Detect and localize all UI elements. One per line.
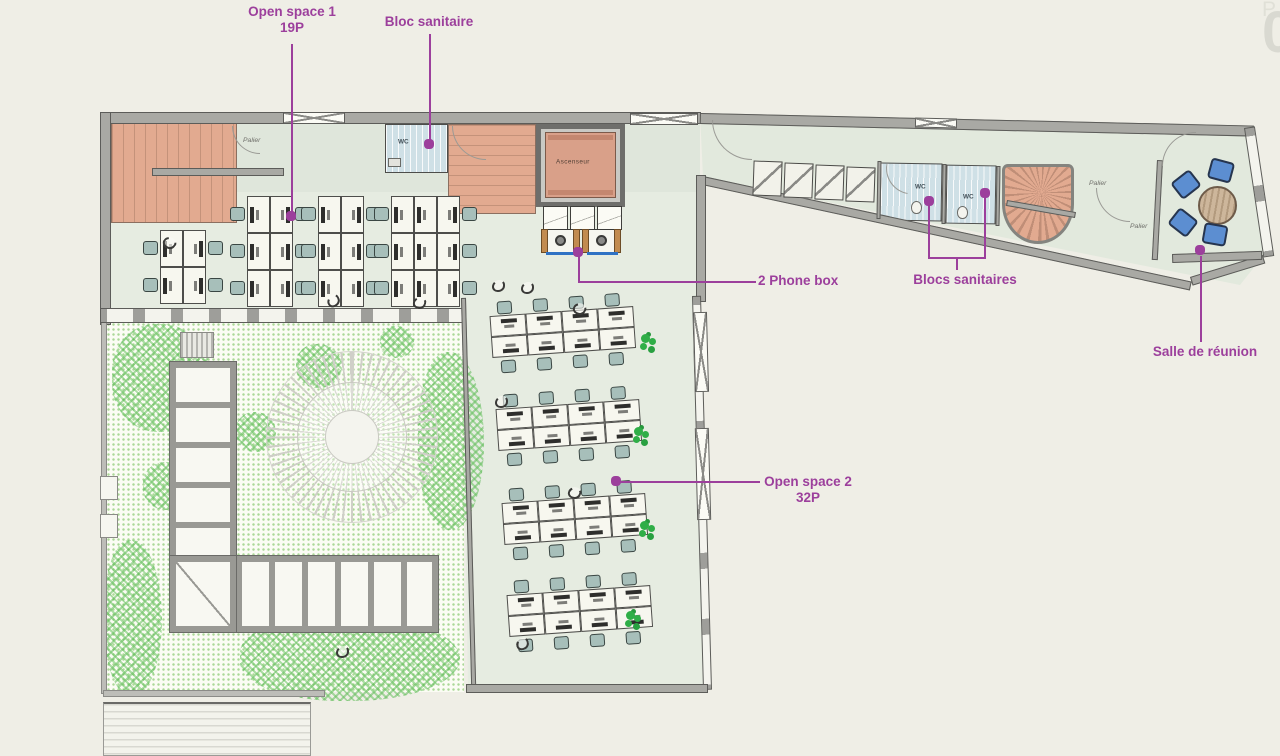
desk: [497, 428, 534, 451]
desk-keyboard: [558, 620, 568, 624]
x-window: [695, 428, 711, 520]
locker-cabinet: [752, 161, 782, 197]
garden-tree: [104, 540, 162, 696]
desk: [391, 196, 414, 233]
desk: [544, 611, 581, 634]
office-chair: [604, 293, 620, 307]
desk-keyboard: [588, 506, 598, 510]
desk: [414, 196, 437, 233]
desk: [542, 590, 579, 613]
phone-box-threshold: [587, 252, 618, 255]
desk-keyboard: [516, 511, 526, 515]
dome-core: [325, 410, 379, 464]
desk-monitor: [617, 434, 633, 439]
desk-keyboard: [511, 436, 521, 440]
office-chair: [572, 354, 588, 368]
toilet-fixture: [911, 201, 922, 214]
office-chair: [549, 544, 565, 558]
office-chair: [208, 241, 223, 255]
desk-keyboard: [521, 603, 531, 607]
x-window: [915, 118, 957, 129]
phone-box-seat: [596, 235, 607, 246]
main-top-wall: [100, 112, 701, 124]
toilet-fixture: [957, 206, 968, 219]
desk-keyboard: [400, 210, 403, 220]
desk-keyboard: [423, 284, 426, 294]
plant-icon: [640, 521, 649, 530]
desk-monitor: [556, 625, 572, 630]
desk-monitor: [417, 244, 421, 260]
office-chair: [584, 541, 600, 555]
desk: [502, 501, 539, 524]
wc-sink: [388, 158, 401, 167]
desk-keyboard: [583, 431, 593, 435]
desk: [183, 267, 206, 304]
desk: [569, 422, 606, 445]
desk-keyboard: [517, 530, 527, 534]
desk-keyboard: [594, 617, 604, 621]
desk-keyboard: [576, 319, 586, 323]
office-chair: [497, 301, 513, 315]
office-chair: [501, 359, 517, 373]
room-label-palier: Palier: [1130, 222, 1147, 230]
desk-monitor: [518, 597, 534, 602]
desk-keyboard: [256, 284, 259, 294]
desk-keyboard: [169, 281, 172, 291]
desk: [490, 314, 527, 337]
street-ramp: [103, 702, 311, 756]
desk-monitor: [394, 207, 398, 223]
desk-monitor: [611, 341, 627, 346]
desk-keyboard: [557, 601, 567, 605]
annotation-line: [578, 254, 580, 282]
annotation-dot: [1195, 245, 1205, 255]
desk-keyboard: [612, 317, 622, 321]
desk-monitor: [551, 533, 567, 538]
desk-keyboard: [281, 210, 284, 220]
annotation-dot: [424, 139, 434, 149]
room-label-wc: WC: [963, 193, 974, 200]
annotation-line: [291, 44, 293, 213]
desk-keyboard: [618, 410, 628, 414]
closet-cabinet: [597, 206, 622, 230]
desk-monitor: [357, 244, 361, 260]
desk-keyboard: [281, 247, 284, 257]
desk: [160, 267, 183, 304]
desk: [341, 270, 364, 307]
phone-box-seat: [555, 235, 566, 246]
office-chair: [507, 452, 523, 466]
open-space-2-bottom-wall: [466, 684, 708, 693]
desk-keyboard: [589, 525, 599, 529]
desk-monitor: [357, 207, 361, 223]
desk: [318, 233, 341, 270]
office-chair: [554, 636, 570, 650]
desk-monitor: [625, 590, 641, 595]
desk-monitor: [199, 278, 203, 294]
desk: [508, 614, 545, 637]
desk-keyboard: [553, 528, 563, 532]
office-chair: [537, 357, 553, 371]
desk-keyboard: [619, 429, 629, 433]
desk-monitor: [199, 241, 203, 257]
office-chair: [608, 352, 624, 366]
office-chair: [208, 278, 223, 292]
desk: [491, 335, 528, 358]
office-chair: [143, 241, 158, 255]
desk-keyboard: [281, 284, 284, 294]
desk: [270, 270, 293, 307]
desk: [531, 404, 568, 427]
desk-monitor: [515, 535, 531, 540]
meeting-table: [1198, 186, 1237, 225]
desk-monitor: [543, 409, 559, 414]
desk-keyboard: [400, 284, 403, 294]
desk-keyboard: [577, 338, 587, 342]
annotation-line: [1200, 256, 1202, 342]
floor-plan-page: 01 PLAN: [0, 0, 1280, 756]
desk-monitor: [250, 244, 254, 260]
office-chair: [620, 539, 636, 553]
desk-monitor: [554, 595, 570, 600]
desk-monitor: [501, 318, 517, 323]
desk-monitor: [549, 503, 565, 508]
annotation-label-blocs-sanitaires: Blocs sanitaires: [895, 272, 1035, 288]
desk-monitor: [539, 346, 555, 351]
office-chair: [301, 244, 316, 258]
phone-box-panel: [614, 229, 621, 253]
desk: [391, 233, 414, 270]
elevator-cab-back: [548, 190, 613, 195]
desk-keyboard: [624, 504, 634, 508]
desk-monitor: [537, 316, 553, 321]
desk-keyboard: [423, 247, 426, 257]
desk: [247, 196, 270, 233]
office-chair: [230, 207, 245, 221]
desk-keyboard: [448, 284, 451, 294]
annotation-label-bloc-sanitaire: Bloc sanitaire: [363, 14, 495, 30]
office-chair: [374, 281, 389, 295]
room-label-wc: WC: [398, 138, 409, 145]
desk-keyboard: [352, 247, 355, 257]
office-chair: [543, 450, 559, 464]
office-chair: [610, 386, 626, 400]
office-chair: [301, 207, 316, 221]
desk: [247, 270, 270, 307]
desk: [183, 230, 206, 267]
closet-cabinet: [570, 206, 595, 230]
desk: [527, 332, 564, 355]
office-chair: [374, 244, 389, 258]
desk-monitor: [357, 281, 361, 297]
desk: [609, 493, 646, 516]
desk-monitor: [321, 281, 325, 297]
garden-wall-nub-2: [100, 514, 118, 538]
annotation-label-2-phone-box: 2 Phone box: [758, 273, 898, 289]
desk-keyboard: [448, 247, 451, 257]
office-chair: [301, 281, 316, 295]
office-chair: [549, 577, 565, 591]
desk-bench-group: [493, 385, 646, 471]
desk: [525, 311, 562, 334]
desk-monitor: [453, 244, 457, 260]
desk: [614, 585, 651, 608]
desk-monitor: [620, 498, 636, 503]
stair-handrail-wall: [152, 168, 284, 176]
desk: [318, 196, 341, 233]
desk-keyboard: [540, 322, 550, 326]
office-chair: [574, 388, 590, 402]
desk: [437, 233, 460, 270]
desk-monitor: [394, 244, 398, 260]
office-chair: [578, 447, 594, 461]
desk-keyboard: [541, 341, 551, 345]
desk-monitor: [513, 505, 529, 510]
office-chair: [509, 488, 525, 502]
desk-keyboard: [546, 415, 556, 419]
room-label-palier: Palier: [1089, 179, 1106, 187]
desk: [503, 522, 540, 545]
desk-monitor: [628, 620, 644, 625]
floor-plan-drawing: PalierPalierPalierWCWCWCAscenseurOpen sp…: [0, 0, 1280, 756]
office-chair: [625, 631, 641, 645]
office-chair: [544, 485, 560, 499]
plant-icon: [641, 334, 650, 343]
desk: [533, 425, 570, 448]
office-chair: [462, 207, 477, 221]
desk-monitor: [417, 207, 421, 223]
annotation-label-open-space-1: Open space 119P: [222, 4, 362, 36]
desk-monitor: [614, 404, 630, 409]
desk-keyboard: [448, 210, 451, 220]
desk-monitor: [509, 441, 525, 446]
desk-keyboard: [510, 417, 520, 421]
office-chair: [513, 546, 529, 560]
desk: [247, 233, 270, 270]
desk: [578, 588, 615, 611]
annotation-line: [578, 281, 756, 283]
desk-keyboard: [400, 247, 403, 257]
desk-monitor: [507, 411, 523, 416]
office-chair: [532, 298, 548, 312]
office-chair: [462, 281, 477, 295]
desk: [341, 196, 364, 233]
desk: [437, 196, 460, 233]
locker-cabinet: [845, 167, 875, 203]
desk-monitor: [587, 530, 603, 535]
desk-monitor: [623, 528, 639, 533]
open-space-1-window-band: [100, 308, 464, 323]
annotation-dot: [286, 211, 296, 221]
desk-monitor: [286, 244, 290, 260]
desk-monitor: [417, 281, 421, 297]
desk: [341, 233, 364, 270]
desk-keyboard: [352, 210, 355, 220]
annotation-dot: [573, 247, 583, 257]
desk-keyboard: [625, 523, 635, 527]
x-window: [693, 312, 709, 392]
office-chair: [462, 244, 477, 258]
desk-monitor: [608, 311, 624, 316]
office-chair: [614, 445, 630, 459]
desk-monitor: [585, 500, 601, 505]
desk-monitor: [575, 343, 591, 348]
desk-monitor: [453, 207, 457, 223]
room-label-ascenseur: Ascenseur: [556, 158, 590, 165]
plant-icon: [626, 611, 635, 620]
desk: [496, 407, 533, 430]
desk-keyboard: [522, 622, 532, 626]
desk: [603, 399, 640, 422]
desk-monitor: [163, 278, 167, 294]
desk: [567, 402, 604, 425]
annotation-label-open-space-2: Open space 232P: [742, 474, 874, 506]
desk-keyboard: [256, 210, 259, 220]
desk-monitor: [250, 281, 254, 297]
desk-keyboard: [423, 210, 426, 220]
desk-keyboard: [194, 244, 197, 254]
locker-cabinet: [814, 165, 844, 201]
office-chair: [621, 572, 637, 586]
locker-cabinet: [783, 163, 813, 199]
plant-icon: [634, 427, 643, 436]
office-chair: [230, 281, 245, 295]
office-chair: [230, 244, 245, 258]
annotation-dot: [924, 196, 934, 206]
desk: [507, 593, 544, 616]
phone-box-panel: [582, 229, 589, 253]
annotation-dot: [611, 476, 621, 486]
desk-monitor: [394, 281, 398, 297]
desk: [537, 498, 574, 521]
phone-box-panel: [541, 229, 548, 253]
room-label-wc: WC: [915, 183, 926, 190]
office-chair: [589, 633, 605, 647]
desk-monitor: [321, 207, 325, 223]
desk-keyboard: [613, 336, 623, 340]
garden-tree: [380, 326, 414, 358]
desk-monitor: [592, 622, 608, 627]
closet-cabinet: [543, 206, 568, 230]
garden-wall-nub-1: [100, 476, 118, 500]
desk-keyboard: [593, 598, 603, 602]
desk-monitor: [545, 439, 561, 444]
desk-monitor: [321, 244, 325, 260]
office-chair: [585, 574, 601, 588]
annotation-line: [984, 198, 986, 258]
desk: [270, 233, 293, 270]
desk-keyboard: [327, 247, 330, 257]
annotation-line: [620, 481, 760, 483]
garden-left-wall: [101, 322, 107, 694]
desk-monitor: [503, 348, 519, 353]
main-left-wall: [100, 112, 111, 325]
room-label-palier: Palier: [243, 136, 260, 144]
skylight-horizontal: [236, 556, 438, 632]
annotation-line: [429, 34, 431, 140]
desk: [599, 327, 636, 350]
desk: [580, 608, 617, 631]
x-window: [630, 113, 698, 125]
desk-keyboard: [582, 412, 592, 416]
desk-keyboard: [505, 343, 515, 347]
phone-box: [582, 229, 621, 253]
garden-bottom-wall: [103, 690, 325, 697]
desk-monitor: [453, 281, 457, 297]
desk: [573, 496, 610, 519]
office-chair: [143, 278, 158, 292]
desk-keyboard: [547, 434, 557, 438]
desk-keyboard: [504, 324, 514, 328]
desk-keyboard: [327, 284, 330, 294]
desk-bench-group: [487, 292, 640, 378]
skylight-corner: [170, 556, 236, 632]
desk: [539, 519, 576, 542]
office-chair: [538, 391, 554, 405]
desk: [575, 516, 612, 539]
ventilation-grate: [180, 332, 214, 358]
desk-keyboard: [552, 509, 562, 513]
desk-monitor: [590, 592, 606, 597]
desk-keyboard: [327, 210, 330, 220]
desk: [391, 270, 414, 307]
annotation-dot: [980, 188, 990, 198]
desk: [563, 329, 600, 352]
desk: [437, 270, 460, 307]
desk: [597, 306, 634, 329]
annotation-line: [956, 257, 958, 270]
annotation-label-salle-de-reunion: Salle de réunion: [1130, 344, 1280, 360]
desk-monitor: [581, 436, 597, 441]
desk: [414, 233, 437, 270]
office-chair: [514, 580, 530, 594]
desk-keyboard: [629, 596, 639, 600]
desk-monitor: [250, 207, 254, 223]
office-chair: [580, 482, 596, 496]
desk-keyboard: [352, 284, 355, 294]
meeting-chair: [1201, 222, 1228, 247]
office-chair: [374, 207, 389, 221]
elevator-cab-door: [548, 135, 613, 140]
desk-monitor: [579, 406, 595, 411]
desk-monitor: [520, 627, 536, 632]
annotation-line: [928, 206, 930, 258]
desk-keyboard: [256, 247, 259, 257]
desk-monitor: [286, 281, 290, 297]
desk-keyboard: [194, 281, 197, 291]
